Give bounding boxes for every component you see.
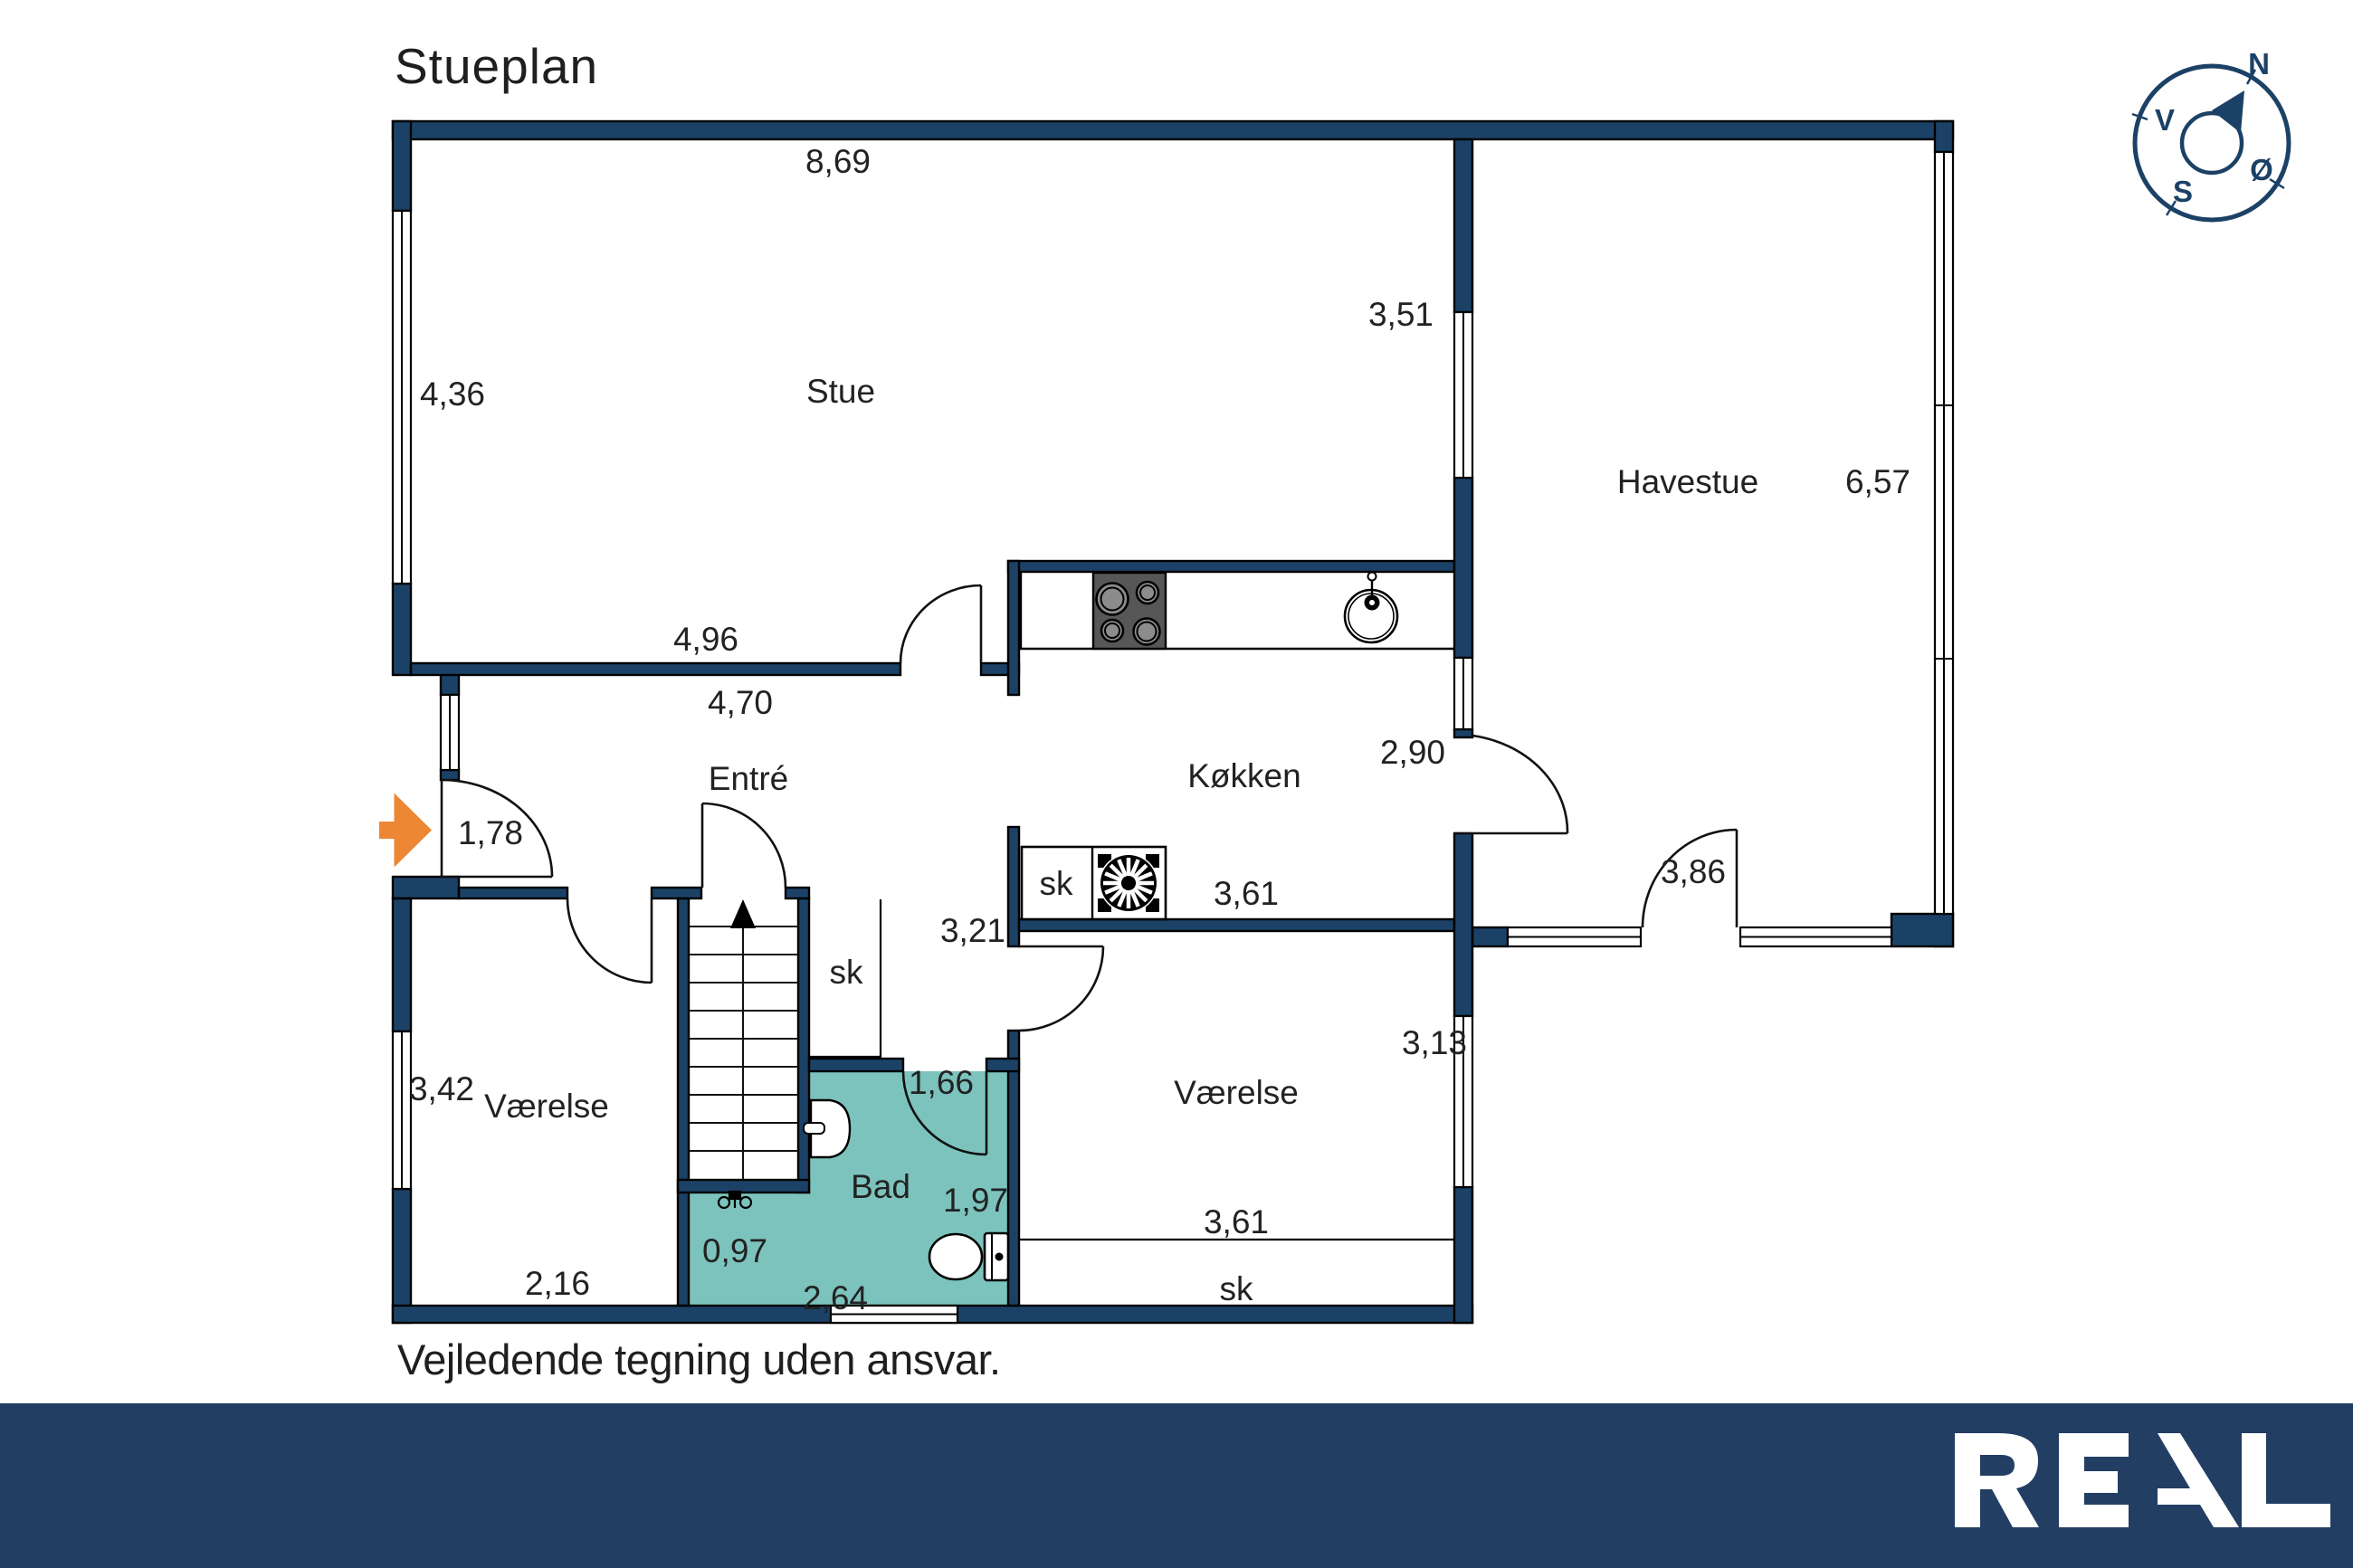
svg-text:3,21: 3,21 [940, 912, 1005, 949]
svg-text:3,61: 3,61 [1214, 875, 1279, 912]
svg-text:1,78: 1,78 [458, 814, 523, 851]
svg-text:Bad: Bad [851, 1168, 910, 1205]
svg-text:4,96: 4,96 [673, 621, 738, 658]
svg-text:3,86: 3,86 [1661, 853, 1726, 890]
svg-text:Vejledende tegning uden ansvar: Vejledende tegning uden ansvar. [397, 1335, 1001, 1383]
svg-text:3,42: 3,42 [409, 1070, 474, 1107]
svg-text:Værelse: Værelse [1174, 1074, 1299, 1111]
svg-text:Havestue: Havestue [1617, 463, 1758, 500]
svg-text:2,16: 2,16 [525, 1265, 590, 1302]
svg-text:sk: sk [830, 954, 864, 991]
svg-text:V: V [2155, 103, 2175, 137]
svg-text:0,97: 0,97 [702, 1232, 767, 1269]
svg-text:2,90: 2,90 [1380, 734, 1445, 771]
svg-text:6,57: 6,57 [1845, 463, 1910, 500]
svg-text:N: N [2248, 47, 2270, 81]
svg-text:8,69: 8,69 [805, 143, 871, 180]
svg-text:sk: sk [1040, 865, 1074, 902]
svg-text:4,36: 4,36 [420, 375, 485, 413]
svg-text:Værelse: Værelse [484, 1088, 609, 1125]
svg-text:3,51: 3,51 [1368, 296, 1434, 333]
svg-text:S: S [2173, 175, 2193, 208]
svg-text:2,64: 2,64 [803, 1279, 868, 1316]
svg-text:Stueplan: Stueplan [395, 38, 598, 94]
svg-text:sk: sk [1220, 1270, 1254, 1307]
svg-text:3,61: 3,61 [1204, 1203, 1269, 1240]
svg-text:1,66: 1,66 [909, 1064, 974, 1101]
svg-text:1,97: 1,97 [943, 1182, 1008, 1219]
svg-text:Køkken: Køkken [1187, 757, 1300, 794]
svg-text:Ø: Ø [2250, 153, 2273, 186]
svg-text:Stue: Stue [806, 373, 875, 410]
svg-text:Entré: Entré [709, 760, 788, 797]
svg-text:3,13: 3,13 [1402, 1024, 1467, 1061]
svg-text:4,70: 4,70 [708, 684, 773, 721]
